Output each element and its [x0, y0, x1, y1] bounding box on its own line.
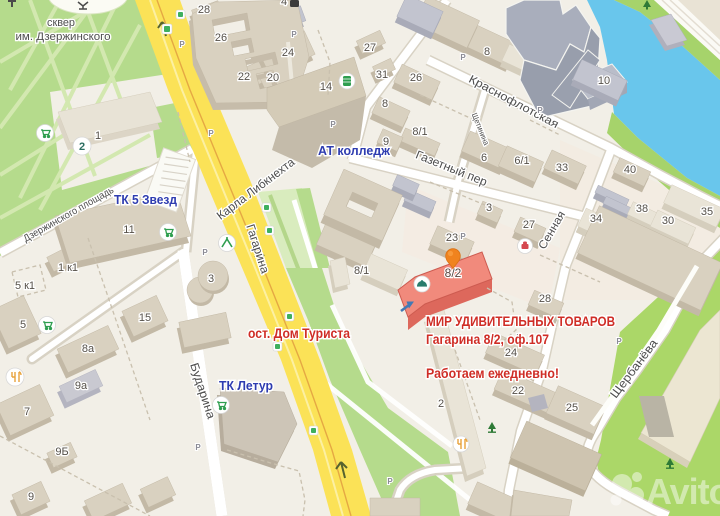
- svg-text:8/1: 8/1: [354, 265, 369, 277]
- svg-text:24: 24: [505, 347, 517, 359]
- svg-text:АТ колледж: АТ колледж: [318, 143, 391, 158]
- svg-text:ТК 5 Звезд: ТК 5 Звезд: [114, 193, 177, 207]
- svg-text:P: P: [537, 106, 543, 115]
- svg-text:23: 23: [446, 232, 458, 244]
- svg-text:2: 2: [438, 398, 444, 410]
- svg-text:40: 40: [624, 164, 636, 176]
- svg-text:33: 33: [556, 162, 568, 174]
- svg-text:20: 20: [267, 72, 279, 84]
- svg-text:15: 15: [139, 312, 151, 324]
- svg-text:P: P: [179, 40, 185, 49]
- svg-text:26: 26: [410, 72, 422, 84]
- svg-text:22: 22: [238, 71, 250, 83]
- svg-text:МИР УДИВИТЕЛЬНЫХ ТОВАРОВ: МИР УДИВИТЕЛЬНЫХ ТОВАРОВ: [426, 313, 615, 329]
- svg-text:10: 10: [598, 75, 610, 87]
- svg-text:ТК Летур: ТК Летур: [219, 379, 273, 393]
- svg-text:8а: 8а: [82, 343, 95, 355]
- svg-text:1 к1: 1 к1: [58, 262, 78, 274]
- svg-text:24: 24: [282, 47, 294, 59]
- svg-text:8/1: 8/1: [412, 126, 427, 138]
- svg-text:P: P: [291, 30, 297, 39]
- svg-text:ост. Дом Туриста: ост. Дом Туриста: [248, 326, 350, 341]
- svg-text:8: 8: [382, 98, 388, 110]
- svg-text:30: 30: [662, 215, 674, 227]
- svg-text:7: 7: [24, 406, 30, 418]
- svg-text:сквер: сквер: [47, 17, 75, 29]
- svg-text:Гагарина 8/2, оф.107: Гагарина 8/2, оф.107: [426, 331, 549, 347]
- svg-text:4: 4: [281, 0, 287, 8]
- svg-text:9: 9: [28, 491, 34, 503]
- svg-text:22: 22: [512, 385, 524, 397]
- svg-text:3: 3: [208, 273, 214, 285]
- svg-text:5: 5: [20, 319, 26, 331]
- svg-text:31: 31: [376, 69, 388, 81]
- svg-text:P: P: [330, 120, 336, 129]
- svg-text:P: P: [616, 337, 622, 346]
- svg-text:3: 3: [486, 202, 492, 214]
- svg-text:5 к1: 5 к1: [15, 280, 35, 292]
- svg-text:P: P: [195, 443, 201, 452]
- svg-text:Работаем ежедневно!: Работаем ежедневно!: [426, 365, 559, 381]
- svg-text:35: 35: [701, 206, 713, 218]
- svg-text:P: P: [208, 129, 214, 138]
- svg-text:26: 26: [215, 32, 227, 44]
- svg-text:14: 14: [320, 81, 332, 93]
- svg-text:P: P: [460, 53, 466, 62]
- svg-text:28: 28: [198, 4, 210, 16]
- svg-text:38: 38: [636, 203, 648, 215]
- svg-text:P: P: [202, 248, 208, 257]
- svg-text:27: 27: [523, 219, 535, 231]
- svg-text:6: 6: [481, 152, 487, 164]
- svg-text:Avito: Avito: [646, 471, 720, 512]
- svg-text:27: 27: [364, 42, 376, 54]
- svg-text:6/1: 6/1: [514, 155, 529, 167]
- svg-text:34: 34: [590, 213, 602, 225]
- svg-text:P: P: [460, 232, 466, 241]
- svg-text:9а: 9а: [75, 380, 88, 392]
- svg-text:25: 25: [566, 402, 578, 414]
- svg-text:2: 2: [79, 141, 85, 153]
- svg-text:28: 28: [539, 293, 551, 305]
- svg-text:им. Дзержинского: им. Дзержинского: [16, 31, 111, 43]
- svg-text:1: 1: [95, 130, 101, 142]
- svg-text:11: 11: [123, 224, 134, 236]
- svg-text:P: P: [387, 477, 393, 486]
- svg-text:9Б: 9Б: [55, 446, 68, 458]
- svg-text:8: 8: [484, 46, 490, 58]
